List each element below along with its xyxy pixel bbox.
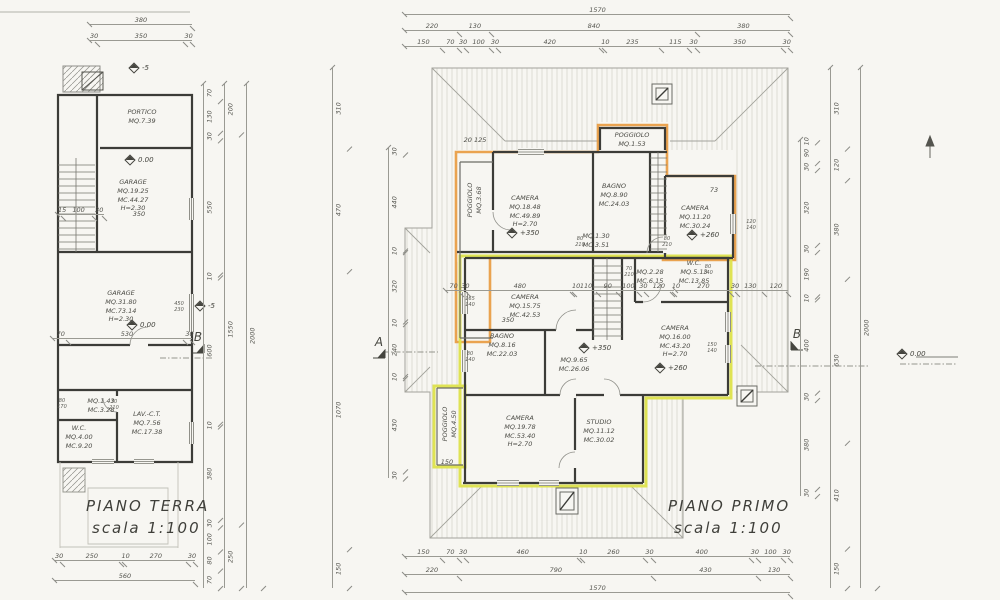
dim-label: 30 <box>185 331 192 338</box>
dim-label: 70 <box>442 39 459 46</box>
room-label-poggiolo-left: POGGIOLO MQ.3.68 <box>466 183 484 218</box>
dim-label: 380 <box>801 400 812 489</box>
dim-label: 420 <box>498 39 601 46</box>
room-label-garage1: GARAGE MQ.19.25 MC.44.27 H=2.30 <box>117 178 148 213</box>
dim-label: 350 <box>697 39 783 46</box>
room-label-camera4: CAMERA MQ.16.00 MC.43.20 H=2.70 <box>659 324 690 359</box>
dim-label: 30 <box>645 549 652 556</box>
dim-label: 30 <box>94 207 104 214</box>
dim-label: 30 <box>55 553 62 560</box>
dim-label: 600 <box>204 277 215 424</box>
dim-label: 150 <box>405 39 442 46</box>
dim-label: 120 <box>646 283 672 290</box>
dim-label: 270 <box>124 553 188 560</box>
dim-inplan-350-pp: 350 <box>502 316 514 325</box>
pt-door-gaps <box>114 342 148 412</box>
dim-label: 1550 <box>225 134 236 525</box>
level-marker-p260-b: +260 <box>656 364 687 372</box>
dim-label: 150 <box>831 549 842 588</box>
room-label-camera1: CAMERA MQ.18.48 MC.49.89 H=2.70 <box>509 194 540 229</box>
pt-planter-hatch <box>63 468 85 492</box>
dim-label: 30 <box>389 472 400 479</box>
dim-label: 270 <box>676 283 731 290</box>
dim-label: 70 <box>53 331 68 338</box>
room-label-disimpegno2: MQ.9.65 MC.26.06 <box>559 356 590 374</box>
dim-label: 30 <box>783 39 790 46</box>
room-label-poggiolo-bottom: POGGIOLO MQ.4.50 <box>441 407 459 442</box>
pt-title-block: PIANO TERRA scala 1:100 <box>86 496 209 540</box>
dim-label: 320 <box>801 170 812 245</box>
dim-label: 30 <box>185 33 192 40</box>
dim-label: 240 <box>389 324 400 376</box>
pt-dim-col-mid: 200 1550 250 <box>224 84 236 588</box>
dim-label: 30 <box>801 489 812 496</box>
dim-frac-450-230: 450 230 <box>174 301 184 313</box>
level-icon <box>578 342 589 353</box>
dim-label: 150 <box>405 549 442 556</box>
dim-label: 790 <box>459 567 653 574</box>
dim-label: 400 <box>653 549 751 556</box>
dim-label: 480 <box>468 283 572 290</box>
level-marker-p260-a: +260 <box>688 231 719 239</box>
dim-label: 90 <box>801 142 812 163</box>
dim-label: 840 <box>491 23 697 30</box>
room-label-camera5: CAMERA MQ.19.78 MC.53.40 H=2.70 <box>504 414 535 449</box>
dim-label: 220 <box>405 567 459 574</box>
dim-label: 1070 <box>333 271 344 549</box>
level-icon <box>896 348 907 359</box>
dim-label: 250 <box>62 553 121 560</box>
dim-label: 30 <box>459 549 466 556</box>
pp-dim-bottom-mid: 220 790 430 130 <box>405 564 790 575</box>
pt-dim-bottom-total: 560 <box>55 570 195 581</box>
dim-label: 80 <box>204 551 215 571</box>
dim-label: 410 <box>831 442 842 549</box>
pt-dim-col-outer: 2000 <box>246 84 258 588</box>
dim-label: 110 <box>574 283 598 290</box>
dim-label: 460 <box>466 549 579 556</box>
room-label-portico: PORTICO MQ.7.39 <box>127 108 156 126</box>
dim-label: 70 <box>442 549 459 556</box>
dim-label: 30 <box>389 148 400 155</box>
dim-frac-b: 80 210 <box>662 236 672 248</box>
dim-label: 30 <box>90 33 97 40</box>
room-label-bagno1: BAGNO MQ.8.90 MC.24.03 <box>599 182 630 208</box>
dim-label: 190 <box>801 252 812 297</box>
dim-label: 440 <box>389 155 400 251</box>
dim-label: 150 <box>333 549 344 588</box>
pp-title: PIANO PRIMO <box>668 496 790 518</box>
dim-frac-d: 120 140 <box>746 219 756 231</box>
drawing-sheet: PORTICO MQ.7.39 GARAGE MQ.19.25 MC.44.27… <box>0 0 1000 600</box>
dim-label: 100 <box>466 39 491 46</box>
dim-label: 70 <box>204 571 215 588</box>
pt-walls <box>58 95 192 462</box>
dim-label: 470 <box>333 149 344 271</box>
pp-dim-bottom-total: 1570 <box>405 582 790 593</box>
dim-frac-h: 70 210 <box>624 266 634 278</box>
pp-dim-mid-right: 270 30 130 120 <box>676 280 788 291</box>
pp-dim-bottom-detail: 150 70 30 460 10 260 30 400 30 100 30 <box>405 546 790 557</box>
dim-label: 130 <box>737 283 763 290</box>
dim-label: 630 <box>831 279 842 443</box>
room-label-lav-ct: LAV.-C.T. MQ.7.56 MC.17.38 <box>132 410 163 436</box>
dim-frac-70-210: 70 210 <box>109 399 119 411</box>
room-label-camera2: CAMERA MQ.11.20 MC.30.24 <box>679 204 710 230</box>
level-icon <box>128 62 139 73</box>
dim-label: 380 <box>831 180 842 279</box>
dim-label: 30 <box>751 549 758 556</box>
dim-label: 430 <box>653 567 758 574</box>
dim-frac-a: 80 210 <box>575 236 585 248</box>
dim-label: 90 <box>598 283 618 290</box>
pp-dim-mid-detail: 70 30 480 10 110 90 100 30 120 10 <box>446 280 674 291</box>
room-label-studio: STUDIO MQ.11.12 MC.30.02 <box>583 418 614 444</box>
room-label-poggiolo-top: POGGIOLO MQ.1.53 <box>615 131 650 149</box>
dim-frac-80-170: 80 170 <box>57 398 67 410</box>
dim-label: 430 <box>389 378 400 471</box>
room-label-wc: W.C. MQ.4.00 MC.9.20 <box>65 424 92 450</box>
pt-dim-inplan-left: 15 100 30 <box>58 204 104 215</box>
dim-label: 560 <box>55 573 195 580</box>
pt-title: PIANO TERRA <box>86 496 209 518</box>
north-arrow-icon <box>926 136 934 158</box>
room-label-bagno2: BAGNO MQ.8.16 MC.22.03 <box>487 332 518 358</box>
dim-inplan-150-pp: 150 <box>441 458 453 467</box>
dim-frac-c: 80 140 <box>703 264 713 276</box>
pp-dim-col-right-outer: 2000 <box>860 68 872 588</box>
dim-label: 350 <box>97 33 184 40</box>
section-marker-a-pp: A <box>372 336 386 359</box>
level-icon <box>654 362 665 373</box>
dim-label: 100 <box>63 207 95 214</box>
pp-dim-col-right-inner: 10 90 30 320 30 190 10 400 30 380 30 <box>800 140 812 496</box>
pp-dim-col-left-inner: 30 440 10 320 10 240 10 430 30 <box>388 148 400 478</box>
pt-scale: scala 1:100 <box>92 518 209 540</box>
dim-label: 120 <box>831 149 842 180</box>
pt-dim-top-total: 380 <box>90 14 192 25</box>
dim-frac-g: 80 140 <box>465 351 475 363</box>
dim-label: 30 <box>188 553 195 560</box>
dim-label: 220 <box>405 23 459 30</box>
dim-label: 200 <box>225 84 236 134</box>
pp-scale: scala 1:100 <box>674 518 790 540</box>
dim-label: 1570 <box>405 585 790 592</box>
level-marker-zero-right: 0.00 <box>898 350 926 358</box>
dim-inplan-20-125-pp: 20 125 <box>464 136 487 145</box>
dim-label: 130 <box>204 101 215 133</box>
dim-label: 30 <box>491 39 498 46</box>
level-marker-p350-b: +350 <box>580 344 611 352</box>
dim-label: 115 <box>661 39 689 46</box>
level-icon <box>124 154 135 165</box>
pt-dim-inplan-garage: 70 530 30 <box>53 328 192 339</box>
level-marker-minus5-a: -5 <box>130 64 149 72</box>
level-marker-p350-a: +350 <box>508 229 539 237</box>
level-icon <box>506 227 517 238</box>
pt-dim-bottom-detail: 30 250 10 270 30 <box>55 550 195 561</box>
pp-dim-top-total: 1570 <box>405 4 790 15</box>
dim-label: 2000 <box>247 84 258 588</box>
dim-inplan-73-pp: 73 <box>710 186 718 195</box>
dim-label: 380 <box>90 17 192 24</box>
pt-dim-top-detail: 30 350 30 <box>90 30 192 41</box>
dim-label: 310 <box>831 68 842 149</box>
dim-label: 100 <box>758 549 783 556</box>
dim-label: 550 <box>204 140 215 275</box>
level-icon <box>686 229 697 240</box>
dim-label: 1570 <box>405 7 790 14</box>
dim-label: 30 <box>801 393 812 400</box>
dim-label: 250 <box>225 525 236 588</box>
pp-title-block: PIANO PRIMO scala 1:100 <box>668 496 790 540</box>
dim-inplan-350: 350 <box>133 210 145 219</box>
dim-frac-e: 150 140 <box>707 342 717 354</box>
dim-frac-f: 165 140 <box>465 296 475 308</box>
dim-label: 400 <box>801 299 812 393</box>
room-label-disimpegno1: MQ.1.30 MC.3.51 <box>582 232 609 250</box>
dim-label: 70 <box>446 283 461 290</box>
pp-dim-top-mid: 220 130 840 380 <box>405 20 790 31</box>
pp-dim-col-left-outer: 310 470 1070 150 <box>332 68 344 588</box>
dim-label: 2000 <box>861 68 872 588</box>
dim-label: 310 <box>333 68 344 149</box>
dim-label: 30 <box>459 39 466 46</box>
dim-label: 120 <box>764 283 788 290</box>
pp-dim-top-detail: 150 70 30 100 30 420 10 235 115 30 350 3… <box>405 36 790 47</box>
dim-label: 380 <box>697 23 790 30</box>
dim-label: 235 <box>604 39 662 46</box>
section-flag-icon <box>372 349 386 359</box>
level-marker-zero-a: 0.00 <box>126 156 154 164</box>
pp-dim-col-right-mid: 310 120 380 630 410 150 <box>830 68 842 588</box>
dim-label: 70 <box>204 84 215 101</box>
dim-label: 320 <box>389 252 400 321</box>
dim-label: 260 <box>582 549 646 556</box>
dim-label: 130 <box>758 567 790 574</box>
dim-label: 530 <box>68 331 185 338</box>
dim-label: 30 <box>783 549 790 556</box>
dim-label: 130 <box>459 23 491 30</box>
dim-label: 100 <box>618 283 640 290</box>
dim-label: 30 <box>689 39 696 46</box>
